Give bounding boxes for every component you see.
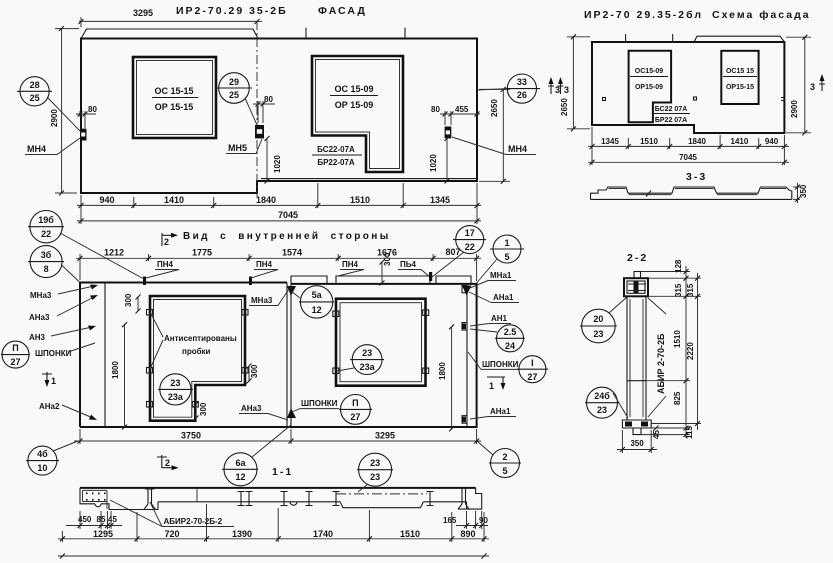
- svg-text:29: 29: [229, 77, 239, 87]
- svg-text:350: 350: [799, 184, 808, 198]
- svg-text:24б: 24б: [594, 391, 610, 401]
- svg-text:1: 1: [504, 238, 509, 248]
- svg-text:23а: 23а: [360, 362, 376, 372]
- svg-text:27: 27: [350, 412, 360, 422]
- svg-text:25: 25: [30, 93, 40, 103]
- svg-text:2: 2: [164, 237, 169, 247]
- svg-text:22: 22: [465, 242, 475, 252]
- svg-text:МН4: МН4: [27, 144, 46, 154]
- svg-text:1574: 1574: [282, 248, 302, 258]
- svg-text:ОС15 15: ОС15 15: [726, 68, 754, 75]
- svg-text:2220: 2220: [686, 342, 695, 360]
- svg-text:23: 23: [370, 458, 380, 468]
- svg-text:6а: 6а: [235, 458, 246, 468]
- svg-text:23: 23: [370, 472, 380, 482]
- svg-text:2: 2: [502, 452, 507, 462]
- svg-text:БР22 07А: БР22 07А: [655, 117, 687, 124]
- svg-text:20: 20: [593, 314, 603, 324]
- svg-text:ОС 15-09: ОС 15-09: [334, 84, 373, 94]
- svg-text:ФАСАД: ФАСАД: [318, 5, 367, 17]
- svg-text:МНа1: МНа1: [490, 271, 512, 280]
- svg-text:Вид с внутренней стороны: Вид с внутренней стороны: [183, 231, 391, 242]
- svg-text:890: 890: [460, 529, 475, 539]
- svg-text:1510: 1510: [400, 529, 420, 539]
- svg-text:АНа3: АНа3: [29, 313, 50, 322]
- svg-text:300: 300: [124, 293, 133, 307]
- svg-text:МН5: МН5: [228, 143, 247, 153]
- svg-text:17: 17: [465, 228, 475, 238]
- svg-text:1020: 1020: [273, 155, 282, 173]
- svg-text:315: 315: [686, 283, 695, 297]
- svg-text:1800: 1800: [111, 361, 120, 379]
- svg-text:АН1: АН1: [491, 314, 508, 323]
- svg-text:23а: 23а: [168, 392, 184, 402]
- svg-text:1345: 1345: [601, 137, 619, 146]
- svg-text:45: 45: [108, 515, 117, 524]
- svg-text:7045: 7045: [278, 210, 298, 220]
- svg-text:23: 23: [170, 378, 180, 388]
- svg-text:2.5: 2.5: [504, 327, 517, 337]
- svg-text:940: 940: [99, 195, 114, 205]
- svg-text:1295: 1295: [93, 529, 113, 539]
- svg-text:1345: 1345: [430, 195, 450, 205]
- svg-text:П: П: [352, 398, 358, 408]
- svg-text:27: 27: [10, 357, 20, 367]
- svg-text:720: 720: [164, 529, 179, 539]
- svg-text:1: 1: [51, 376, 56, 386]
- svg-text:1510: 1510: [350, 195, 370, 205]
- svg-text:1-1: 1-1: [272, 466, 293, 478]
- svg-text:825: 825: [673, 391, 682, 405]
- svg-text:БС22 07А: БС22 07А: [655, 106, 688, 113]
- svg-text:1800: 1800: [438, 362, 447, 380]
- svg-text:7045: 7045: [679, 153, 697, 162]
- svg-text:ОР15-09: ОР15-09: [635, 84, 663, 91]
- svg-text:ПН4: ПН4: [342, 260, 359, 269]
- svg-text:2-2: 2-2: [627, 252, 648, 264]
- svg-text:350: 350: [630, 439, 644, 448]
- svg-text:ШПОНКИ: ШПОНКИ: [35, 349, 72, 358]
- svg-text:АБИР2-70-2Б-2: АБИР2-70-2Б-2: [164, 517, 223, 526]
- svg-text:5: 5: [502, 466, 507, 476]
- svg-text:2650: 2650: [560, 98, 569, 116]
- svg-text:1212: 1212: [104, 248, 124, 258]
- svg-text:23: 23: [597, 405, 607, 415]
- svg-text:ШПОНКИ: ШПОНКИ: [482, 360, 519, 369]
- svg-text:МН4: МН4: [508, 144, 527, 154]
- svg-text:45: 45: [652, 430, 661, 439]
- svg-text:АН3: АН3: [29, 333, 46, 342]
- svg-text:1840: 1840: [256, 195, 276, 205]
- svg-text:2: 2: [165, 458, 170, 468]
- svg-text:80: 80: [264, 95, 273, 104]
- svg-text:80: 80: [88, 105, 97, 114]
- svg-text:128: 128: [674, 259, 683, 273]
- svg-text:12: 12: [312, 305, 322, 315]
- svg-text:П: П: [12, 343, 18, 353]
- svg-text:1740: 1740: [313, 529, 333, 539]
- svg-text:5: 5: [504, 252, 509, 262]
- svg-text:23: 23: [362, 348, 372, 358]
- svg-text:4б: 4б: [37, 449, 48, 459]
- svg-text:8: 8: [44, 264, 49, 274]
- svg-text:1510: 1510: [673, 330, 682, 348]
- svg-text:АНа1: АНа1: [493, 293, 514, 302]
- svg-text:12: 12: [235, 472, 245, 482]
- svg-text:10: 10: [37, 463, 47, 473]
- svg-text:25: 25: [229, 90, 239, 100]
- svg-text:115: 115: [685, 426, 694, 439]
- svg-text:Антисептированы: Антисептированы: [164, 334, 237, 343]
- svg-text:I: I: [531, 358, 534, 368]
- svg-text:27: 27: [527, 372, 537, 382]
- svg-text:3б: 3б: [41, 250, 52, 260]
- svg-text:ОС15-09: ОС15-09: [635, 68, 664, 75]
- svg-text:БР22-07А: БР22-07А: [317, 158, 355, 167]
- svg-text:2650: 2650: [490, 99, 499, 117]
- svg-text:1020: 1020: [429, 154, 438, 172]
- svg-text:АНа1: АНа1: [490, 407, 511, 416]
- svg-text:1410: 1410: [164, 195, 184, 205]
- svg-text:БС22-07А: БС22-07А: [317, 145, 355, 154]
- svg-text:ИР2-70.29 35-2Б: ИР2-70.29 35-2Б: [176, 5, 288, 17]
- svg-text:АБИР 2-70-2Б: АБИР 2-70-2Б: [656, 333, 666, 394]
- svg-text:3: 3: [564, 85, 569, 95]
- svg-text:165: 165: [443, 516, 457, 525]
- svg-text:940: 940: [765, 137, 779, 146]
- svg-text:1390: 1390: [232, 529, 252, 539]
- svg-text:300: 300: [199, 402, 208, 416]
- svg-text:1840: 1840: [688, 137, 706, 146]
- svg-text:3: 3: [810, 82, 815, 92]
- svg-text:1775: 1775: [192, 248, 212, 258]
- svg-text:23: 23: [593, 329, 603, 339]
- svg-text:ШПОНКИ: ШПОНКИ: [301, 399, 338, 408]
- svg-text:ПН4: ПН4: [256, 260, 273, 269]
- svg-text:АНа2: АНа2: [39, 402, 60, 411]
- svg-text:ПЬ4: ПЬ4: [400, 260, 417, 269]
- svg-text:Схема фасада: Схема фасада: [712, 9, 811, 21]
- svg-text:пробки: пробки: [182, 347, 211, 356]
- svg-text:ОР 15-09: ОР 15-09: [335, 100, 374, 110]
- svg-text:3750: 3750: [181, 431, 201, 441]
- svg-text:ПН4: ПН4: [157, 260, 174, 269]
- svg-text:АНа3: АНа3: [241, 404, 262, 413]
- svg-text:19б: 19б: [38, 215, 54, 225]
- svg-text:ОС 15-15: ОС 15-15: [154, 86, 193, 96]
- svg-text:300: 300: [250, 364, 259, 378]
- svg-text:1676: 1676: [377, 248, 397, 258]
- svg-text:22: 22: [41, 229, 51, 239]
- svg-text:1410: 1410: [731, 137, 749, 146]
- svg-text:2900: 2900: [50, 109, 59, 127]
- svg-text:МНа3: МНа3: [251, 296, 273, 305]
- svg-text:24: 24: [505, 341, 515, 351]
- svg-text:28: 28: [30, 80, 40, 90]
- svg-text:315: 315: [674, 283, 683, 297]
- svg-text:3295: 3295: [133, 8, 153, 18]
- svg-text:ОР 15-15: ОР 15-15: [155, 102, 194, 112]
- svg-text:3-3: 3-3: [686, 171, 707, 183]
- svg-text:3295: 3295: [375, 431, 395, 441]
- svg-text:33: 33: [517, 77, 527, 87]
- svg-text:ИР2-70 29.35-2бл: ИР2-70 29.35-2бл: [584, 9, 703, 21]
- svg-text:80: 80: [431, 105, 440, 114]
- svg-text:26: 26: [517, 90, 527, 100]
- svg-text:ОР15-15: ОР15-15: [726, 84, 754, 91]
- svg-text:МНа3: МНа3: [30, 291, 52, 300]
- svg-text:2900: 2900: [790, 100, 799, 118]
- svg-text:5а: 5а: [312, 290, 323, 300]
- svg-text:1: 1: [489, 381, 494, 391]
- svg-text:1510: 1510: [640, 137, 658, 146]
- svg-text:455: 455: [455, 105, 469, 114]
